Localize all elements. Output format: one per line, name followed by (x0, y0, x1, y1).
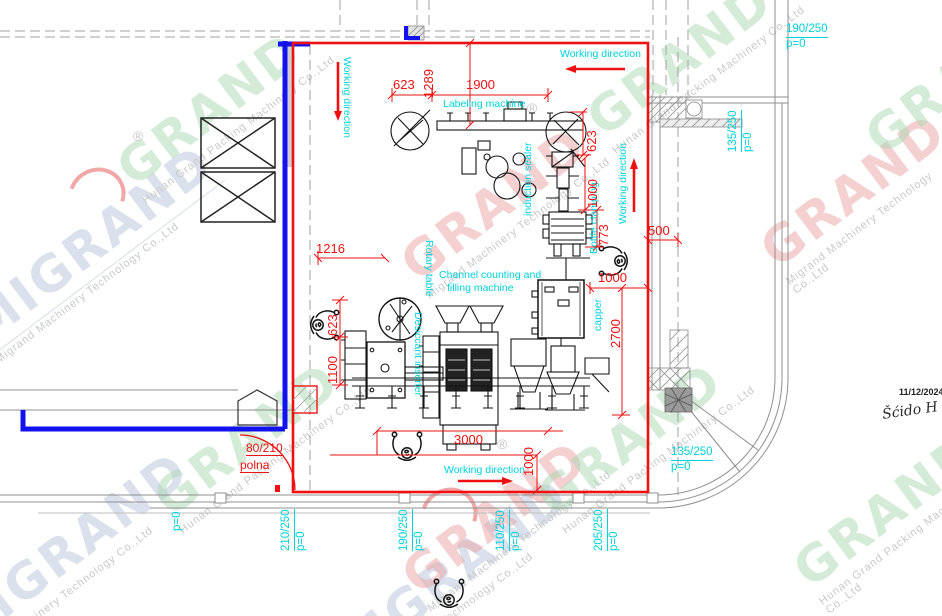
operator-icon (434, 579, 463, 607)
dim-1900: 1900 (466, 78, 495, 92)
working-direction-label-bottom: Working direction (444, 465, 525, 476)
dim-623-top: 623 (393, 78, 415, 92)
dim-500: 500 (648, 224, 670, 238)
tank-symbol (238, 390, 277, 425)
dim-1000-right: 1000 (586, 179, 600, 208)
rotary-table-label: Rotary table (423, 240, 434, 297)
dim-1000-capper: 1000 (598, 271, 627, 285)
channel-machine-label-line2: filling machine (447, 283, 514, 294)
floorplan-linework (0, 0, 942, 616)
dim-3000: 3000 (454, 433, 483, 447)
dim-1216: 1216 (316, 242, 345, 256)
level-mark-right-wall: 135/250 p=0 (727, 110, 756, 152)
capper-label: capper (593, 299, 604, 331)
dim-1289: 1289 (422, 69, 436, 98)
level-mark-top-right: 190/250 p=0 (786, 23, 828, 52)
level-mark-bottom-1: 210/250 p=0 (280, 509, 309, 551)
bottle-clamping-drawing (543, 212, 592, 280)
channel-machine-label-line1: Channel counting and (439, 270, 541, 281)
wall-hatching (287, 26, 742, 412)
dim-2700: 2700 (609, 319, 623, 348)
working-direction-label-left: Working direction (341, 57, 352, 138)
dim-1100: 1100 (326, 356, 340, 384)
dim-623-left: 623 (326, 314, 340, 336)
operator-icon (392, 432, 421, 460)
level-mark-bottom-0: p=0 (171, 511, 185, 531)
desiccant-inserter-label: Desiccant inserter (412, 312, 423, 396)
level-mark-bottom-4: 205/250 p=0 (593, 509, 622, 551)
door-size-label: 80/210 (246, 442, 283, 456)
induction-sealer-label: induction sealer (523, 142, 534, 216)
working-direction-label-top: Working direction (560, 49, 641, 60)
induction-sealer-drawing (546, 152, 579, 211)
working-direction-label-right: Working direction (618, 143, 629, 224)
blue-supply-line (23, 26, 420, 429)
door-name-label: polna (240, 459, 269, 473)
level-mark-corner-door: 135/250 p=0 (671, 446, 713, 475)
cad-floorplan-sheet: MIGRAND Migrand Machinery Technology Co.… (0, 0, 942, 616)
dim-623-right: 623 (585, 130, 599, 152)
drawing-date: 11/12/2024 (899, 387, 942, 397)
dim-773: 773 (597, 224, 611, 246)
bottle-elevator-drawing (510, 339, 548, 409)
storage-racks (201, 118, 275, 222)
level-mark-bottom-3: 110/250 p=0 (495, 510, 524, 551)
dim-1000-bottom: 1000 (522, 447, 536, 476)
level-mark-bottom-2: 190/250 p=0 (398, 509, 427, 551)
labeling-machine-label: Labeling machine (443, 99, 525, 110)
